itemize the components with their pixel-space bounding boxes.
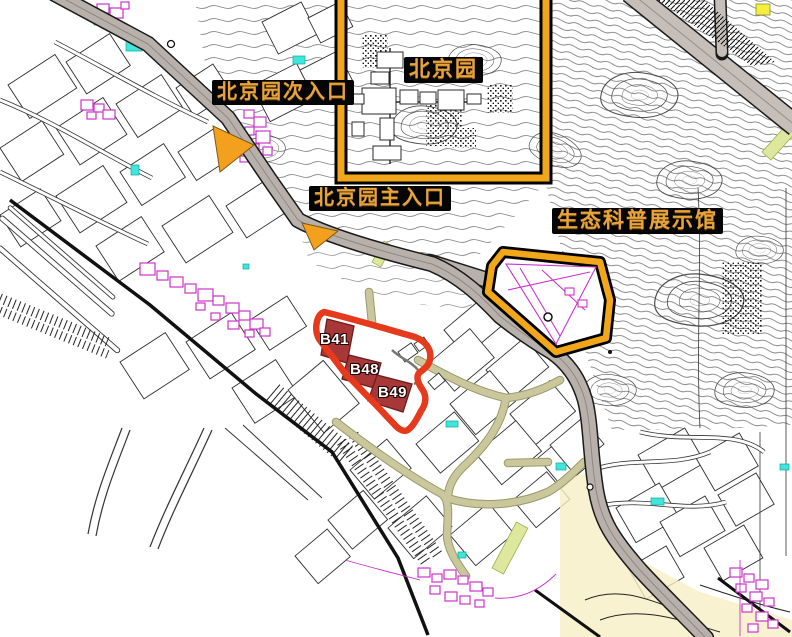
label-building-b48: B48 xyxy=(350,361,379,378)
label-main-entrance: 北京园主入口 xyxy=(309,186,451,211)
label-secondary-entrance: 北京园次入口 xyxy=(212,80,354,105)
label-building-b49: B49 xyxy=(378,384,407,401)
label-garden: 北京园 xyxy=(404,57,483,83)
dense-vegetation xyxy=(722,262,762,334)
site-plan-canvas xyxy=(0,0,792,637)
label-eco-exhibition-hall: 生态科普展示馆 xyxy=(552,208,723,234)
site-plan-screenshot: 北京园次入口 北京园 北京园主入口 生态科普展示馆 B41 B48 B49 xyxy=(0,0,792,637)
label-building-b41: B41 xyxy=(320,331,349,348)
